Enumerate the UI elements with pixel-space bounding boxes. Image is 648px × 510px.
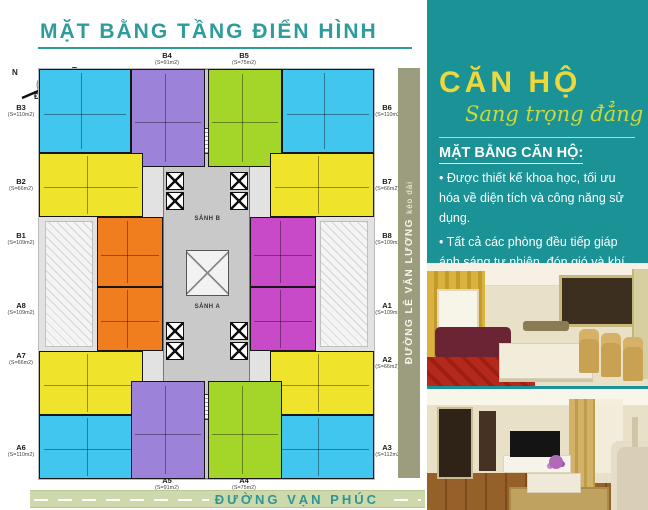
street-right-label: ĐƯỜNG LÊ VĂN LƯƠNG kéo dài bbox=[404, 181, 415, 364]
unit-id: A3 bbox=[374, 444, 400, 452]
unit-A3-region bbox=[270, 415, 374, 479]
elevator-icon bbox=[166, 192, 184, 210]
unit-area: (S=66m2) bbox=[8, 187, 35, 193]
elevator-icon bbox=[166, 342, 184, 360]
title-underline bbox=[38, 47, 412, 49]
street-bottom-label: ĐƯỜNG VẠN PHÚC bbox=[209, 492, 385, 507]
flowers bbox=[549, 455, 563, 469]
elevator-icon bbox=[230, 192, 248, 210]
dining-chair bbox=[601, 333, 621, 377]
unit-B7-region bbox=[270, 153, 374, 217]
unit-area: (S=109m2) bbox=[8, 311, 35, 317]
street-van-phuc: ĐƯỜNG VẠN PHÚC bbox=[30, 490, 425, 508]
unit-A8-region bbox=[97, 287, 163, 351]
unit-A6-region bbox=[39, 415, 143, 479]
unit-label-A3: A3 (S=112m2) bbox=[374, 444, 400, 459]
tv bbox=[510, 431, 560, 457]
unit-area: (S=91m2) bbox=[149, 61, 185, 67]
unit-label-B4: B4 (S=91m2) bbox=[147, 52, 187, 67]
unit-label-B3: B3 (S=110m2) bbox=[6, 104, 36, 119]
unit-id: B6 bbox=[374, 104, 400, 112]
lobby-b-label: SẢNH B bbox=[164, 216, 251, 222]
unit-area: (S=109m2) bbox=[375, 241, 398, 247]
floor-plan: SẢNH B SẢNH A bbox=[38, 68, 375, 480]
unit-label-B6: B6 (S=110m2) bbox=[374, 104, 400, 119]
unit-A5-region bbox=[131, 381, 205, 479]
unit-id: A7 bbox=[6, 352, 36, 360]
void-hatch-left bbox=[45, 221, 93, 347]
unit-id: B3 bbox=[6, 104, 36, 112]
sidebar-heading: CĂN HỘ bbox=[439, 66, 581, 100]
unit-area: (S=66m2) bbox=[8, 361, 35, 367]
unit-id: A6 bbox=[6, 444, 36, 452]
unit-area: (S=66m2) bbox=[375, 365, 398, 371]
unit-area: (S=66m2) bbox=[375, 187, 398, 193]
unit-area: (S=110m2) bbox=[8, 113, 35, 119]
brochure-page: MẶT BẰNG TẦNG ĐIỂN HÌNH N T Đ B SẢNH B S… bbox=[0, 0, 648, 510]
unit-label-B5: B5 (S=75m2) bbox=[224, 52, 264, 67]
sidebar: CĂN HỘ Sang trọng đẳng cấp MẶT BẰNG CĂN … bbox=[427, 0, 648, 510]
street-le-van-luong: ĐƯỜNG LÊ VĂN LƯƠNG kéo dài bbox=[398, 68, 420, 478]
dining-chair bbox=[579, 329, 599, 373]
unit-B8-region bbox=[250, 217, 316, 287]
unit-id: A2 bbox=[374, 356, 400, 364]
elevator-icon bbox=[230, 322, 248, 340]
unit-id: B8 bbox=[374, 232, 400, 240]
unit-id: A1 bbox=[374, 302, 400, 310]
unit-id: B7 bbox=[374, 178, 400, 186]
street-right-suffix: kéo dài bbox=[405, 181, 414, 214]
unit-B6-region bbox=[282, 69, 374, 153]
unit-area: (S=109m2) bbox=[375, 311, 398, 317]
unit-label-A8: A8 (S=109m2) bbox=[6, 302, 36, 317]
door bbox=[479, 411, 496, 471]
core-void bbox=[186, 250, 229, 296]
unit-area: (S=110m2) bbox=[8, 453, 35, 459]
unit-A2-region bbox=[270, 351, 374, 415]
unit-label-A7: A7 (S=66m2) bbox=[6, 352, 36, 367]
sidebar-divider bbox=[439, 137, 635, 138]
unit-id: B2 bbox=[6, 178, 36, 186]
sofa bbox=[611, 441, 648, 510]
sidebar-tagline: Sang trọng đẳng cấp bbox=[465, 102, 648, 126]
page-title: MẶT BẰNG TẦNG ĐIỂN HÌNH bbox=[40, 20, 378, 44]
unit-A4-region bbox=[208, 381, 282, 479]
sidebar-section-title: MẶT BẰNG CĂN HỘ: bbox=[439, 145, 583, 164]
unit-label-B8: B8 (S=109m2) bbox=[374, 232, 400, 247]
unit-label-A2: A2 (S=66m2) bbox=[374, 356, 400, 371]
unit-B2-region bbox=[39, 153, 143, 217]
unit-label-B1: B1 (S=109m2) bbox=[6, 232, 36, 247]
elevator-icon bbox=[166, 322, 184, 340]
bullet-item: • Được thiết kế khoa học, tối ưu hóa về … bbox=[439, 168, 639, 228]
wall-art bbox=[559, 275, 637, 327]
unit-id: B1 bbox=[6, 232, 36, 240]
street-right-name: ĐƯỜNG LÊ VĂN LƯƠNG bbox=[404, 218, 415, 364]
unit-id: A4 bbox=[224, 477, 264, 485]
unit-area: (S=112m2) bbox=[375, 453, 398, 459]
unit-area: (S=109m2) bbox=[8, 241, 35, 247]
table-decor bbox=[523, 321, 569, 331]
unit-id: B5 bbox=[224, 52, 264, 60]
unit-label-B2: B2 (S=66m2) bbox=[6, 178, 36, 193]
unit-area: (S=110m2) bbox=[375, 113, 398, 119]
floor-lamp bbox=[632, 417, 638, 447]
unit-id: A8 bbox=[6, 302, 36, 310]
living-room-photo bbox=[427, 389, 648, 510]
unit-B1-region bbox=[97, 217, 163, 287]
coffee-table bbox=[527, 473, 581, 493]
unit-area: (S=75m2) bbox=[226, 61, 262, 67]
unit-id: B4 bbox=[147, 52, 187, 60]
void-hatch-right bbox=[320, 221, 368, 347]
elevator-icon bbox=[166, 172, 184, 190]
elevator-icon bbox=[230, 172, 248, 190]
unit-A7-region bbox=[39, 351, 143, 415]
elevator-icon bbox=[230, 342, 248, 360]
unit-id: A5 bbox=[147, 477, 187, 485]
unit-label-A6: A6 (S=110m2) bbox=[6, 444, 36, 459]
unit-B3-region bbox=[39, 69, 131, 153]
dining-chair bbox=[623, 337, 643, 381]
hallway bbox=[437, 407, 473, 479]
unit-label-A1: A1 (S=109m2) bbox=[374, 302, 400, 317]
lobby-a-label: SẢNH A bbox=[164, 304, 251, 310]
unit-A1-region bbox=[250, 287, 316, 351]
unit-label-B7: B7 (S=66m2) bbox=[374, 178, 400, 193]
dining-room-photo bbox=[427, 263, 648, 386]
compass-letter-n: N bbox=[12, 68, 18, 77]
